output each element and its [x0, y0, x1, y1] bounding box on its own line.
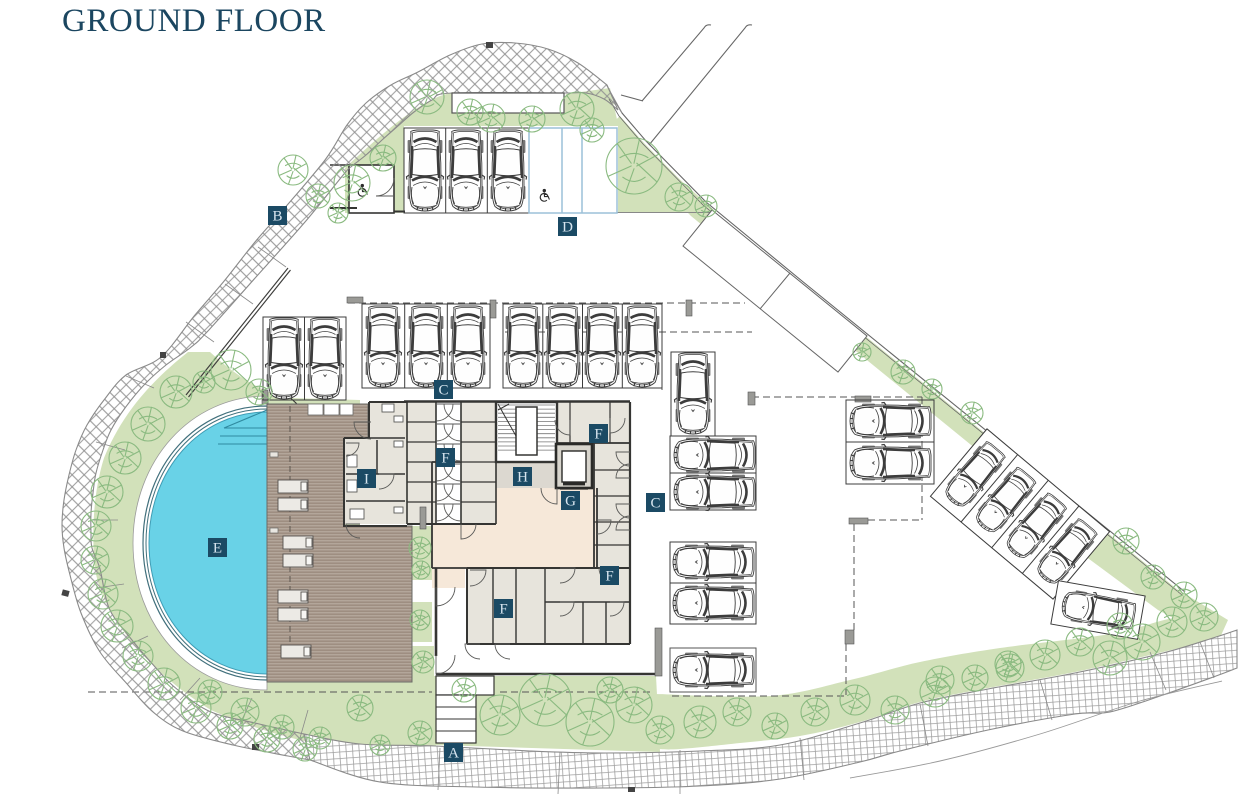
svg-text:F: F — [499, 602, 507, 618]
svg-text:I: I — [364, 472, 369, 488]
svg-text:F: F — [605, 569, 613, 585]
svg-text:GROUND FLOOR: GROUND FLOOR — [62, 3, 326, 39]
svg-text:C: C — [438, 383, 448, 399]
svg-text:G: G — [565, 494, 576, 510]
svg-text:F: F — [594, 427, 602, 443]
svg-text:D: D — [562, 220, 573, 236]
svg-text:C: C — [650, 496, 660, 512]
svg-text:A: A — [448, 746, 459, 762]
svg-text:F: F — [441, 451, 449, 467]
svg-text:B: B — [272, 209, 282, 225]
svg-text:H: H — [517, 470, 528, 486]
svg-text:E: E — [213, 541, 222, 557]
